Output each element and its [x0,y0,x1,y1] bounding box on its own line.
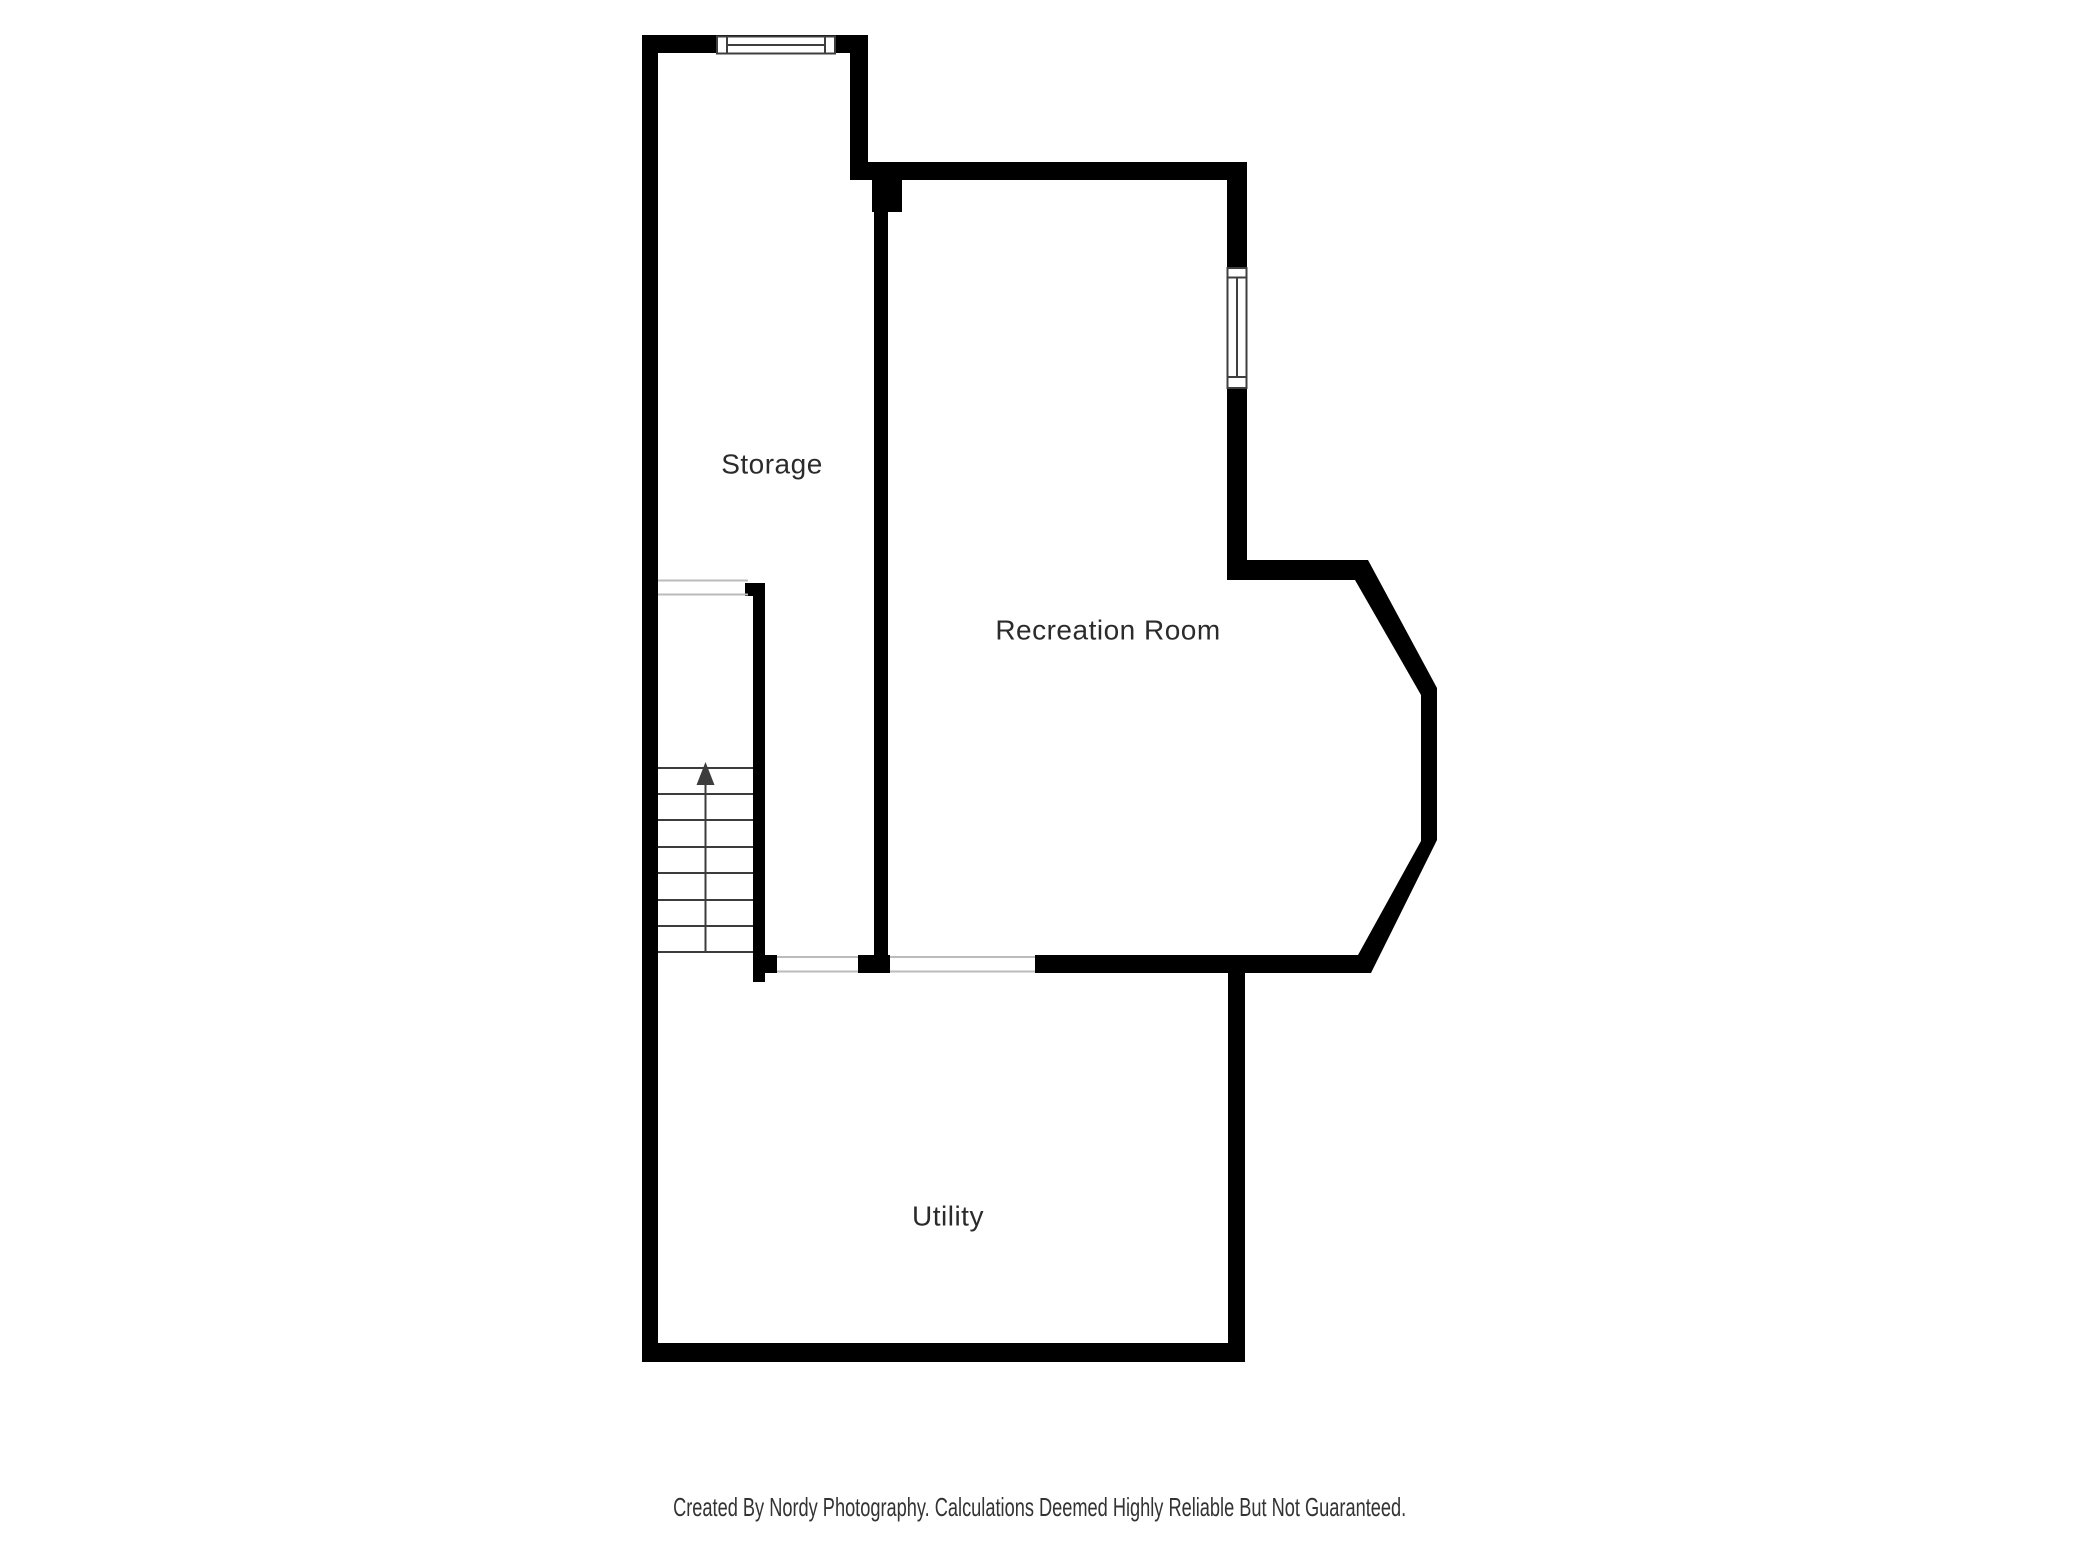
room-label-utility: Utility [912,1201,984,1232]
wall-bay-band [1227,560,1437,973]
footer-caption-text: Created By Nordy Photography. Calculatio… [673,1492,1406,1523]
door-openings [658,581,1035,972]
wall-exterior-left [642,35,658,1362]
room-label-storage: Storage [721,449,823,480]
footer-caption: Created By Nordy Photography. Calculatio… [0,1492,2080,1523]
wall-recreation-bottom [1035,955,1365,973]
staircase [658,762,753,952]
stairs-up-arrow-icon [697,762,715,785]
wall-interior-stub-top [872,178,902,212]
wall-door-stub [858,955,890,973]
walls [642,35,1437,1362]
window-symbol-right [1228,268,1247,388]
room-label-recreation: Recreation Room [995,615,1220,646]
floor-plan-page: Storage Recreation Room Utility Created … [0,0,2080,1560]
wall-bottom-segment-stairs [753,955,777,973]
room-labels: Storage Recreation Room Utility [721,449,1220,1232]
wall-utility-right [1228,955,1245,1362]
window-symbol-top [717,37,835,54]
wall-exterior-bottom [642,1343,1245,1362]
wall-stair-right [753,583,765,982]
wall-interior-storage-recreation [874,178,888,955]
wall-recreation-top [850,162,1247,180]
floor-plan-canvas: Storage Recreation Room Utility [0,0,2080,1560]
wall-storage-right-upper [850,35,868,180]
